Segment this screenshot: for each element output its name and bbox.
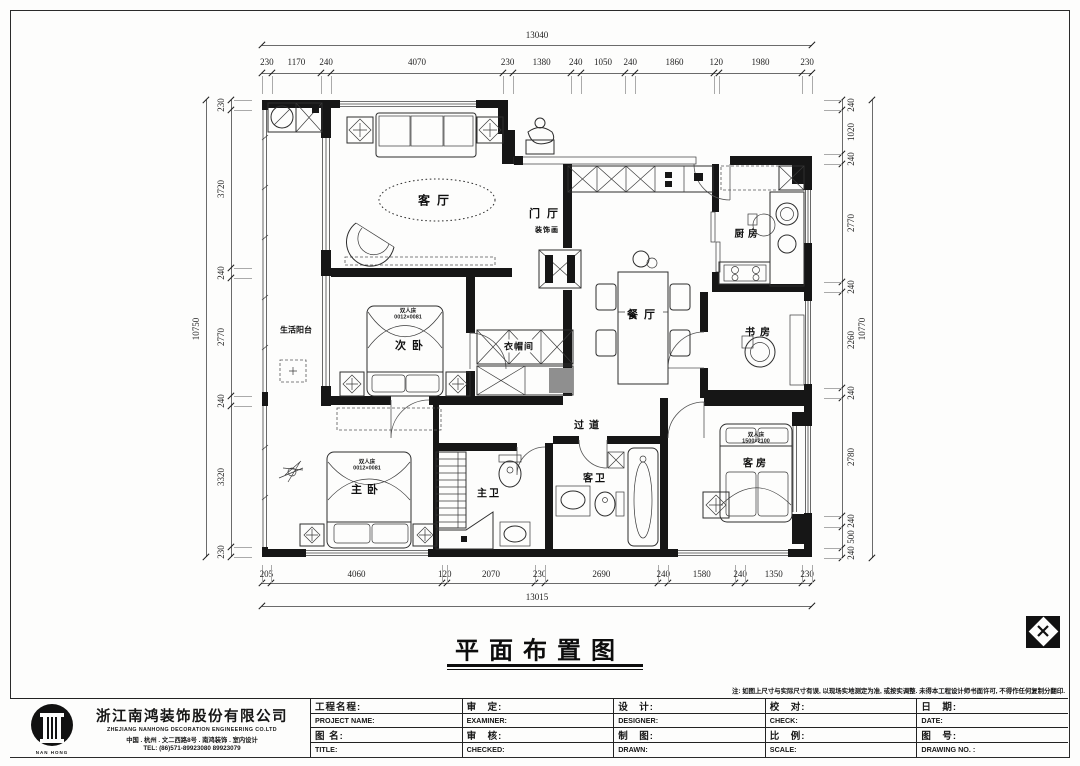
witness-line (824, 292, 842, 293)
drawing-sheet: 客厅 门厅 装饰画 厨房 餐厅 书房 生活阳台 次卧 衣帽间 过道 主卧 主卫 … (0, 0, 1080, 766)
dimension-label: 1020 (846, 123, 856, 141)
witness-line (824, 548, 842, 549)
sheet-note: 注: 如图上尺寸与实际尺寸有误, 以现场实地测定为准, 或按实调整. 未得本工程… (732, 686, 1065, 695)
witness-line (719, 76, 720, 94)
witness-line (745, 565, 746, 583)
witness-line (824, 558, 842, 559)
witness-line (824, 100, 842, 101)
witness-line (272, 76, 273, 94)
witness-line (271, 565, 272, 583)
witness-line (331, 76, 332, 94)
tb-drawingno-en: DRAWING NO. : (917, 743, 1068, 758)
dimension-line (262, 606, 812, 607)
dimension-line (262, 73, 812, 74)
tb-col-5: 日 期: DATE: 图 号: DRAWING NO. : (917, 699, 1068, 757)
tb-col-3: 设 计: DESIGNER: 制 图: DRAWN: (614, 699, 766, 757)
corner-mark-icon (1024, 612, 1064, 652)
dimension-label: 240 (846, 280, 856, 294)
dimension-line (231, 100, 232, 557)
column-logo-icon (24, 703, 80, 751)
witness-line (824, 516, 842, 517)
tb-date-en: DATE: (917, 714, 1068, 729)
dimension-label: 240 (569, 57, 583, 67)
dimension-line (262, 45, 812, 46)
title-block: NAN HONG 浙江南鸿装饰股份有限公司 ZHEJIANG NANHONG D… (10, 698, 1068, 757)
room-label-balcony: 生活阳台 (280, 325, 312, 336)
tb-col-4: 校 对: CHECK: 比 例: SCALE: (766, 699, 918, 757)
witness-line (635, 76, 636, 94)
company-block: NAN HONG 浙江南鸿装饰股份有限公司 ZHEJIANG NANHONG D… (10, 699, 311, 757)
drawing-title: 平面布置图 (455, 631, 625, 666)
company-name-cn: 浙江南鸿装饰股份有限公司 (80, 705, 304, 726)
dimension-label: 2260 (846, 331, 856, 349)
dimension-line (872, 100, 873, 558)
witness-line (234, 557, 252, 558)
guest-bed-size-label: 双人床 1500×2100 (742, 433, 770, 446)
master-bed-size-label: 双人床 0012×0081 (353, 460, 381, 473)
dimension-label: 230 (800, 57, 814, 67)
tb-titlename-en: TITLE: (311, 743, 462, 758)
dimension-label: 240 (846, 98, 856, 112)
tb-date-cn: 日 期: (917, 699, 1068, 714)
witness-line (625, 76, 626, 94)
dimension-label: 240 (846, 515, 856, 529)
dimension-label: 120 (438, 569, 452, 579)
witness-line (824, 164, 842, 165)
tb-col-2: 审 定: EXAMINER: 审 核: CHECKED: (463, 699, 615, 757)
room-label-bedroom2: 次卧 (395, 337, 429, 353)
title-underline-thick (447, 664, 643, 667)
tb-examiner-cn: 审 定: (463, 699, 614, 714)
tb-drawingno-cn: 图 号: (917, 728, 1068, 743)
witness-line (234, 100, 252, 101)
furniture (268, 103, 804, 549)
dimension-label: 240 (846, 386, 856, 400)
tb-scale-en: SCALE: (766, 743, 917, 758)
tb-drawn-en: DRAWN: (614, 743, 765, 758)
walls (262, 100, 812, 557)
room-label-dining: 餐厅 (625, 306, 663, 322)
dimension-label: 2770 (846, 214, 856, 232)
dimension-label: 240 (216, 394, 226, 408)
dimension-label: 1050 (594, 57, 612, 67)
witness-line (824, 527, 842, 528)
witness-line (824, 154, 842, 155)
dimension-label: 3320 (216, 468, 226, 486)
witness-line (714, 76, 715, 94)
master-bed-size: 0012×0081 (353, 466, 381, 472)
witness-line (234, 547, 252, 548)
witness-line (545, 565, 546, 583)
witness-line (234, 268, 252, 269)
dimension-label: 1860 (666, 57, 684, 67)
room-label-living: 客厅 (418, 192, 456, 209)
bed2-size-label: 双人床 0012×0081 (394, 309, 422, 322)
witness-line (321, 76, 322, 94)
dimension-label: 1380 (533, 57, 551, 67)
company-info: 浙江南鸿装饰股份有限公司 ZHEJIANG NANHONG DECORATION… (80, 705, 310, 752)
dimension-label: 240 (623, 57, 637, 67)
title-block-table: 工程名程: PROJECT NAME: 图 名: TITLE: 审 定: EXA… (311, 699, 1068, 757)
witness-line (234, 278, 252, 279)
room-label-cloakroom: 衣帽间 (503, 340, 535, 353)
witness-line (262, 76, 263, 94)
witness-line (234, 406, 252, 407)
witness-line (812, 565, 813, 583)
dimension-label: 13015 (526, 592, 549, 602)
tb-designer-cn: 设 计: (614, 699, 765, 714)
dimension-label: 2690 (592, 569, 610, 579)
witness-line (234, 396, 252, 397)
dimension-label: 230 (216, 545, 226, 559)
witness-line (503, 76, 504, 94)
room-label-deco: 装饰画 (535, 225, 559, 235)
dimension-label: 13040 (526, 30, 549, 40)
room-label-foyer: 门厅 (529, 205, 565, 221)
dimension-label: 2070 (482, 569, 500, 579)
tb-examiner-en: EXAMINER: (463, 714, 614, 729)
room-label-kitchen: 厨房 (734, 226, 761, 240)
room-label-corridor: 过道 (574, 417, 604, 432)
witness-line (824, 110, 842, 111)
dimension-label: 230 (216, 98, 226, 112)
witness-line (802, 76, 803, 94)
witness-line (447, 565, 448, 583)
tb-checked-cn: 审 核: (463, 728, 614, 743)
dimension-line (262, 583, 812, 584)
tb-check-cn: 校 对: (766, 699, 917, 714)
dimension-label: 4060 (347, 569, 365, 579)
title-underline-thin (447, 669, 643, 670)
dimension-label: 230 (501, 57, 515, 67)
witness-line (812, 76, 813, 94)
dimension-label: 240 (216, 266, 226, 280)
tb-checked-en: CHECKED: (463, 743, 614, 758)
company-name-en: ZHEJIANG NANHONG DECORATION ENGINEERING … (80, 727, 304, 733)
tb-titlename-cn: 图 名: (311, 728, 462, 743)
tb-check-en: CHECK: (766, 714, 917, 729)
dimension-label: 2770 (216, 328, 226, 346)
dimension-label: 1170 (288, 57, 306, 67)
room-label-master: 主卧 (351, 481, 383, 497)
dimension-label: 240 (846, 152, 856, 166)
tb-project-cn: 工程名程: (311, 699, 462, 714)
witness-line (668, 565, 669, 583)
witness-line (571, 76, 572, 94)
witness-line (824, 388, 842, 389)
tb-designer-en: DESIGNER: (614, 714, 765, 729)
logo-caption: NAN HONG (36, 750, 69, 755)
dimension-label: 2780 (846, 448, 856, 466)
dimension-label: 500 (846, 530, 856, 544)
dimension-label: 230 (260, 57, 274, 67)
dimension-label: 10750 (191, 317, 201, 340)
witness-line (234, 110, 252, 111)
dimension-label: 3720 (216, 180, 226, 198)
witness-line (824, 398, 842, 399)
witness-line (513, 76, 514, 94)
tb-project-en: PROJECT NAME: (311, 714, 462, 729)
room-label-study: 书房 (745, 324, 775, 339)
tb-scale-cn: 比 例: (766, 728, 917, 743)
room-label-master-bath: 主卫 (477, 485, 501, 500)
room-label-guest: 客房 (743, 455, 769, 470)
dimension-label: 1350 (765, 569, 783, 579)
guest-bed-size: 1500×2100 (742, 439, 770, 445)
dimension-label: 240 (319, 57, 333, 67)
dimension-label: 1980 (752, 57, 770, 67)
dimension-label: 1580 (693, 569, 711, 579)
company-address: 中国 . 杭州 . 文二西路8号 . 南鸿装饰 . 室内设计 (80, 735, 304, 744)
dimension-label: 240 (846, 546, 856, 560)
tb-drawn-cn: 制 图: (614, 728, 765, 743)
witness-line (824, 282, 842, 283)
dimension-label: 4070 (408, 57, 426, 67)
company-logo: NAN HONG (24, 703, 80, 753)
company-tel: TEL: (86)571-89923080 89923079 (80, 745, 304, 752)
dimension-line (206, 100, 207, 557)
tb-col-1: 工程名程: PROJECT NAME: 图 名: TITLE: (311, 699, 463, 757)
witness-line (581, 76, 582, 94)
bed2-size: 0012×0081 (394, 315, 422, 321)
dimension-label: 120 (710, 57, 724, 67)
dimension-label: 10770 (857, 318, 867, 341)
dimension-line (842, 100, 843, 558)
room-label-guest-bath: 客卫 (583, 470, 607, 485)
